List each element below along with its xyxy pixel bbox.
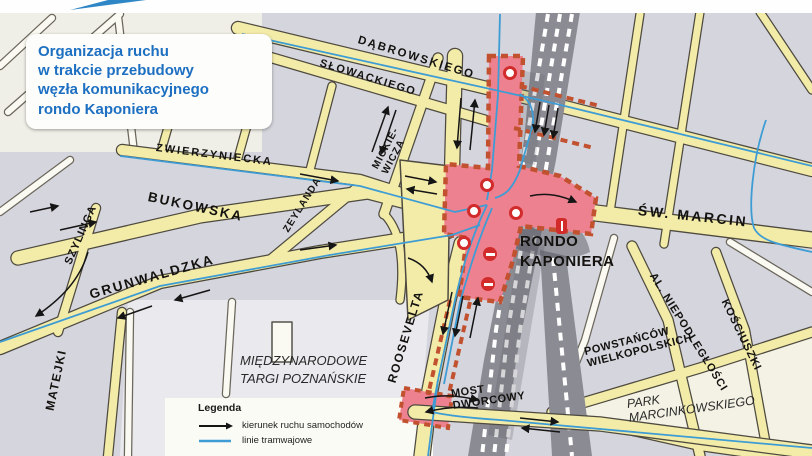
map-title-box: Organizacja ruchu w trakcie przebudowy w… [26, 34, 272, 129]
legend-heading: Legenda [198, 402, 428, 414]
legend-item-tram-lines: linie tramwajowe [198, 433, 428, 448]
legend-item-label: linie tramwajowe [242, 435, 312, 446]
no-entry-sign [483, 247, 497, 261]
road-closed-sign [457, 236, 471, 250]
tram-line-icon [198, 438, 234, 444]
car-direction-arrow-icon [198, 422, 234, 430]
legend-item-car-direction: kierunek ruchu samochodów [198, 418, 428, 433]
no-stopping-sign [556, 218, 567, 234]
logo-swoosh-icon [68, 0, 148, 13]
road-closed-sign [467, 204, 481, 218]
legend-item-label: kierunek ruchu samochodów [242, 420, 363, 431]
no-entry-sign [481, 277, 495, 291]
road-closed-sign [503, 66, 517, 80]
road-closed-sign [480, 178, 494, 192]
traffic-map: Organizacja ruchu w trakcie przebudowy w… [0, 0, 812, 456]
map-title: Organizacja ruchu w trakcie przebudowy w… [38, 42, 260, 119]
legend: Legenda kierunek ruchu samochodów linie … [198, 402, 428, 448]
road-closed-sign [509, 206, 523, 220]
